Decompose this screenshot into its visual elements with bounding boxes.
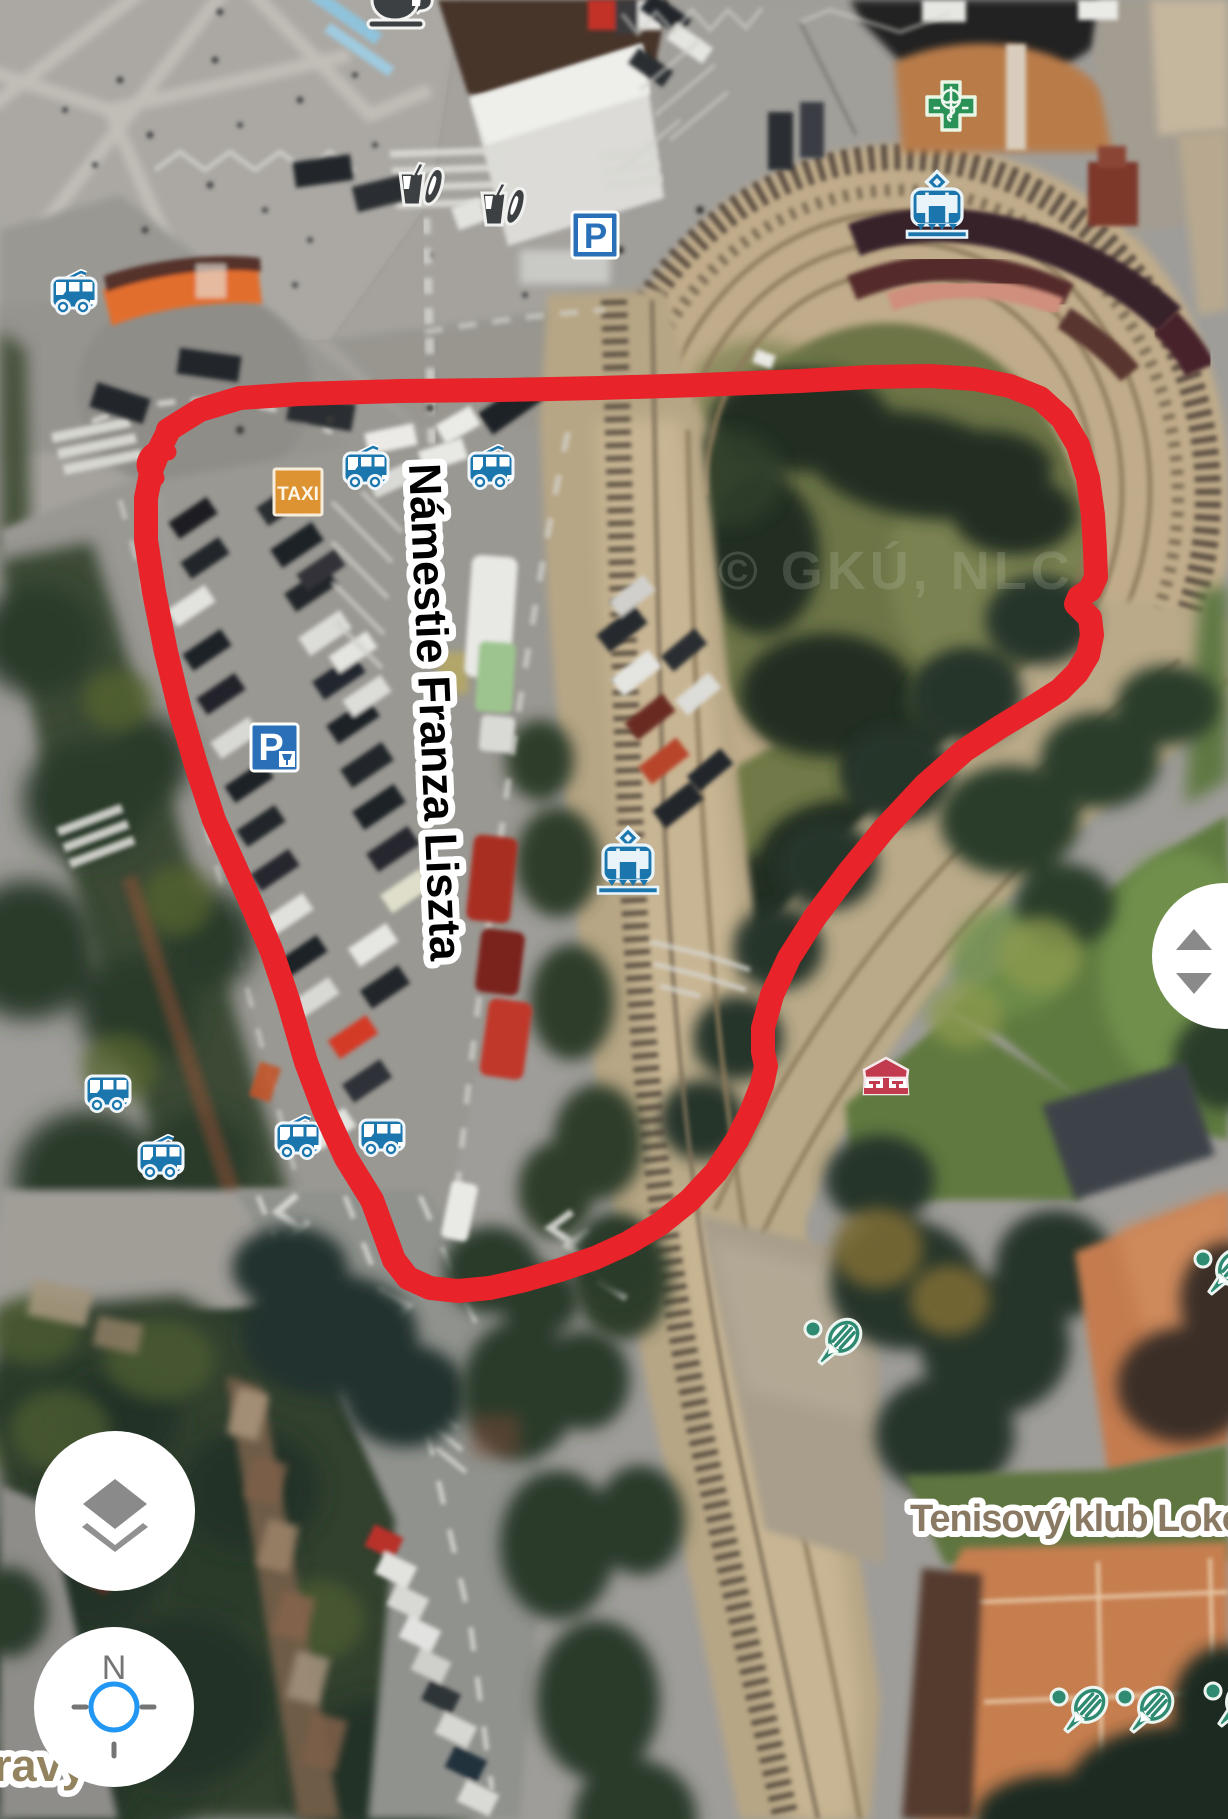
svg-text:© GKÚ, NLC: © GKÚ, NLC (718, 541, 1074, 601)
svg-text:P: P (584, 217, 607, 256)
svg-text:TAXI: TAXI (277, 484, 319, 505)
svg-text:N: N (102, 1649, 127, 1687)
svg-text:Tenisový klub Lokomotíva: Tenisový klub Lokomotíva (910, 1498, 1228, 1540)
